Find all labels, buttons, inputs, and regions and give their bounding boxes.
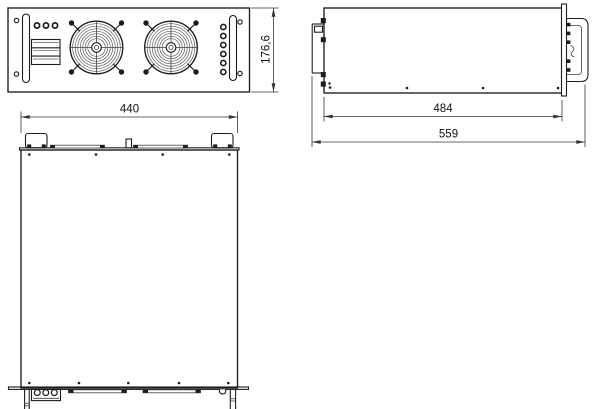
front-panel-edge [562, 4, 567, 96]
fan-grille-left [69, 20, 124, 74]
rear-notch [220, 389, 226, 394]
rear-connector-area [312, 18, 330, 87]
handle-top-left [26, 134, 48, 148]
side-bottom-screws [329, 86, 560, 89]
side-body-outline [324, 8, 562, 93]
front-view [8, 8, 250, 92]
front-cover-screws [28, 153, 231, 156]
mount-leg-right [230, 390, 235, 409]
top-body-outline [21, 150, 238, 388]
fan-grille-right [143, 20, 198, 74]
handle-bar-right [230, 16, 237, 81]
handle-clip-wire [571, 46, 575, 57]
rear-strips [69, 390, 201, 393]
vent-louver-block [32, 40, 61, 65]
handle-top-right [212, 134, 234, 148]
technical-drawing-page: 440 176,6 484 559 [0, 0, 600, 409]
center-tab [126, 139, 132, 148]
dim-front-height: 176,6 [251, 8, 279, 92]
dim-front-width: 440 [21, 104, 238, 134]
dim-label-side-body-depth: 484 [433, 103, 453, 115]
mount-leg-left [25, 390, 30, 409]
dim-label-side-total-depth: 559 [439, 129, 458, 141]
front-panel-outline [8, 8, 250, 92]
dim-side-body-depth: 484 [324, 97, 562, 122]
drawing-canvas: 440 176,6 484 559 [0, 0, 600, 409]
indicator-hole-column [221, 24, 226, 74]
side-view [312, 4, 588, 96]
handle-bar-left [23, 14, 30, 83]
terminal-block [32, 389, 61, 400]
carry-handle-side [567, 19, 589, 82]
dim-label-front-height: 176,6 [261, 35, 273, 64]
top-view [9, 134, 249, 409]
dim-label-front-width: 440 [120, 104, 139, 116]
dimension-annotations: 440 176,6 484 559 [21, 8, 585, 147]
rear-cover-screws [28, 382, 230, 385]
status-led-row [34, 23, 57, 28]
